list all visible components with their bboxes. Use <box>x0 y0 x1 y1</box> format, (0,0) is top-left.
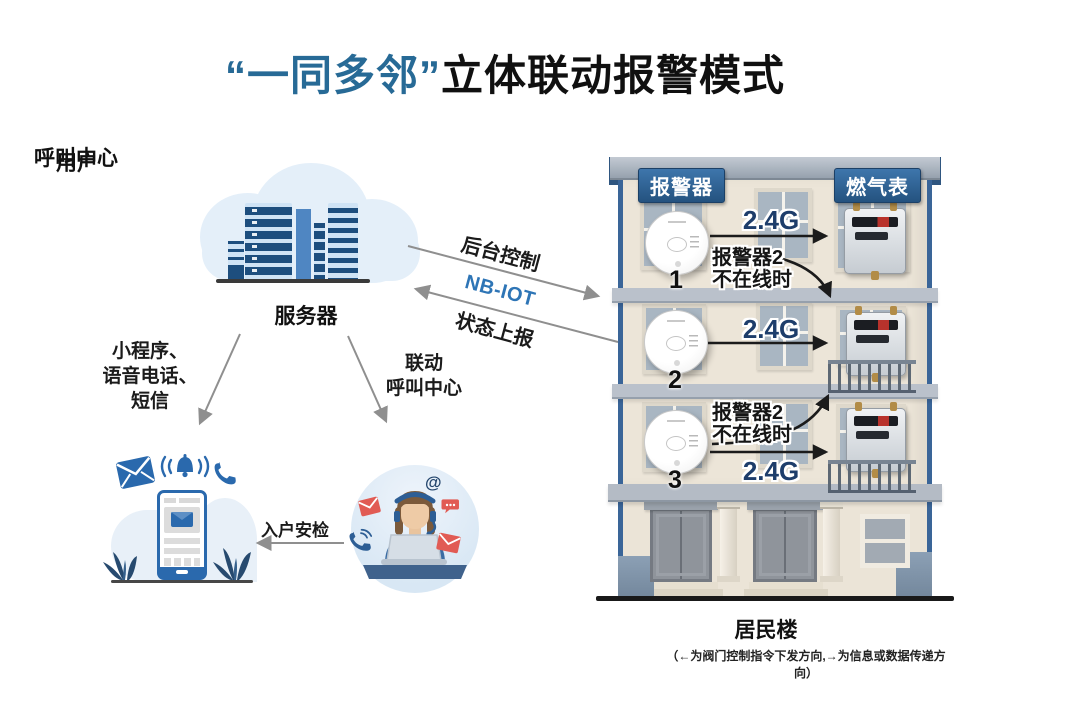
label-home-inspection: 入户安检 <box>243 516 347 541</box>
alarm-display-ring <box>667 237 687 252</box>
meter-display <box>855 232 889 240</box>
meter-pipe <box>855 402 862 411</box>
link-24g-label: 2.4G <box>726 314 816 345</box>
infographic-canvas: “一同多邻”立体联动报警模式 服务器 后台控制 NB-IOT 状态上报 小程序、… <box>0 0 1080 720</box>
fallback-note: 报警器2 不在线时 <box>712 402 792 446</box>
meter-display <box>852 217 898 227</box>
phone-home-bar <box>160 567 204 577</box>
meter-display <box>854 320 898 330</box>
meter-pipe <box>890 402 897 411</box>
direction-note: （←为阀门控制指令下发方向,→为信息或数据传递方向） <box>664 647 948 681</box>
gas-meter <box>844 208 906 274</box>
meter-pipe <box>855 306 862 315</box>
label-user-channels-line: 语音电话、 <box>90 364 210 389</box>
window <box>860 514 910 568</box>
alarm-display-ring <box>666 436 686 451</box>
door-step <box>749 582 823 589</box>
meter-pipe <box>890 306 897 315</box>
label-linkage-line: 联动 <box>372 351 476 376</box>
alarm-number: 3 <box>645 466 705 495</box>
notification-card <box>164 507 200 533</box>
meter-pipe <box>853 202 860 211</box>
ground-line <box>596 596 954 601</box>
plinth-block <box>618 556 654 596</box>
label-user-channels-line: 短信 <box>90 389 210 414</box>
fallback-note: 报警器2 不在线时 <box>712 247 792 291</box>
column <box>823 500 840 582</box>
screen-bar <box>179 498 200 503</box>
meter-display <box>856 431 888 439</box>
meter-display <box>854 416 898 426</box>
meter-pipe <box>871 271 879 280</box>
alarm-number: 1 <box>646 266 706 295</box>
label-user-channels-line: 小程序、 <box>90 339 210 364</box>
door-step <box>646 582 718 589</box>
alarm-header-badge: 报警器 <box>638 168 725 203</box>
mail-icon <box>171 512 193 527</box>
balcony-railing <box>828 460 916 493</box>
screen-tiles <box>164 558 200 566</box>
alarm-indicator-text <box>689 335 698 350</box>
meter-header-badge: 燃气表 <box>834 168 921 203</box>
alarm-brand-mark <box>667 420 686 422</box>
door-step <box>744 589 828 596</box>
door-lintel <box>747 502 823 510</box>
alarm-number: 2 <box>645 366 705 395</box>
screen-line <box>164 538 200 544</box>
alarm-device <box>644 310 708 374</box>
label-linkage-line: 呼叫中心 <box>372 376 476 401</box>
door <box>753 508 817 582</box>
smartphone-illustration <box>157 490 207 580</box>
meter-pipe <box>890 202 897 211</box>
door-lintel <box>644 502 718 510</box>
building-caption: 居民楼 <box>700 614 832 644</box>
label-user-channels: 小程序、 语音电话、 短信 <box>90 339 210 414</box>
door <box>650 508 712 582</box>
link-24g-label: 2.4G <box>726 456 816 487</box>
screen-line <box>164 548 200 554</box>
screen-bar <box>164 498 176 503</box>
alarm-indicator-text <box>689 435 698 450</box>
alarm-device <box>644 410 708 474</box>
fallback-note-line: 报警器2 <box>712 247 783 269</box>
column <box>720 500 737 582</box>
alarm-indicator-text <box>690 236 699 251</box>
link-24g-label: 2.4G <box>726 205 816 236</box>
balcony-railing <box>828 360 916 393</box>
alarm-brand-mark <box>667 320 686 322</box>
label-linkage-call: 联动 呼叫中心 <box>372 351 476 401</box>
fallback-note-line: 不在线时 <box>712 424 792 446</box>
fallback-note-line: 不在线时 <box>712 269 792 291</box>
fallback-note-line: 报警器2 <box>712 402 783 424</box>
alarm-brand-mark <box>668 221 687 223</box>
alarm-display-ring <box>666 336 686 351</box>
meter-display <box>856 335 888 343</box>
